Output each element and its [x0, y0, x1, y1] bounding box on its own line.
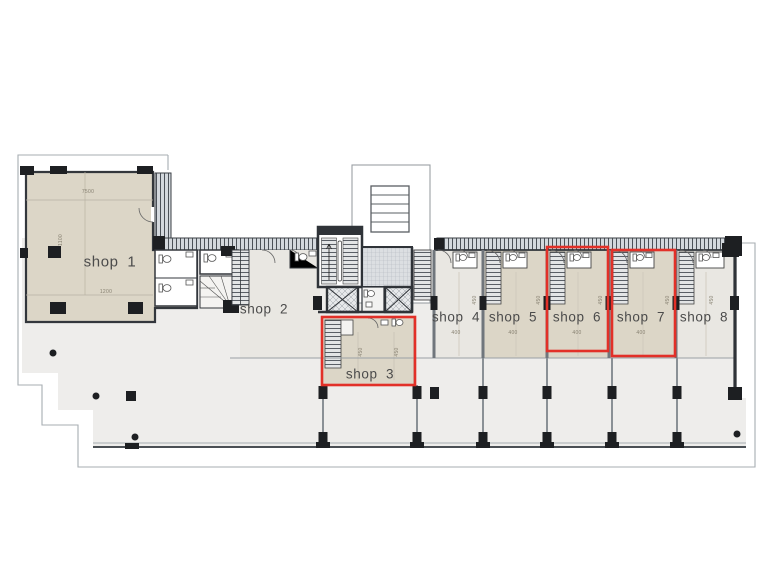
dim-shop4-width: 400 — [451, 330, 460, 336]
corner-column — [728, 387, 742, 400]
shop-1-door-gap — [151, 207, 155, 222]
dim-shop4-depth: 450 — [472, 295, 478, 304]
toilet-icon — [381, 319, 403, 326]
toilet-icon — [295, 253, 307, 261]
dim-shop6-depth: 450 — [598, 295, 604, 304]
elevator-icon — [385, 287, 412, 312]
shop-4-label: shop 4 — [432, 310, 480, 325]
dim-shop6-width: 400 — [572, 330, 581, 336]
shop-2-label: shop 2 — [240, 302, 288, 317]
shop-3-label: shop 3 — [346, 367, 394, 382]
dim-shop8-depth: 450 — [709, 295, 715, 304]
dim-shop7-depth: 450 — [665, 295, 671, 304]
core-staircase — [318, 227, 362, 287]
dim-shop5-depth: 450 — [536, 295, 542, 304]
staircase-icon — [414, 250, 431, 300]
column — [313, 296, 322, 310]
dim-shop1-top: 7500 — [82, 189, 94, 195]
shop-5-label: shop 5 — [489, 310, 537, 325]
wc-cluster — [155, 246, 239, 313]
shop-1-label: shop 1 — [84, 254, 137, 271]
shop-7-label: shop 7 — [617, 310, 665, 325]
toilet-icon — [204, 254, 216, 262]
shop-8-label: shop 8 — [680, 310, 728, 325]
dim-shop3-depth: 450 — [358, 347, 364, 356]
floor-plan-canvas — [0, 0, 768, 576]
core-region — [318, 165, 431, 312]
elevator-icon — [327, 287, 358, 312]
staircase-icon — [325, 320, 341, 368]
dim-shop1-left: 1100 — [58, 234, 64, 246]
floor-plan-page: shop 1 shop 2 shop 3 shop 4 shop 5 shop … — [0, 0, 768, 576]
core-lobby — [362, 247, 412, 287]
dim-shop1-front: 1200 — [100, 289, 112, 295]
shop-6-label: shop 6 — [553, 310, 601, 325]
dim-shop5-width: 400 — [508, 330, 517, 336]
dim-shop7-width: 400 — [636, 330, 645, 336]
dim-shop3-depth-2: 450 — [394, 347, 400, 356]
